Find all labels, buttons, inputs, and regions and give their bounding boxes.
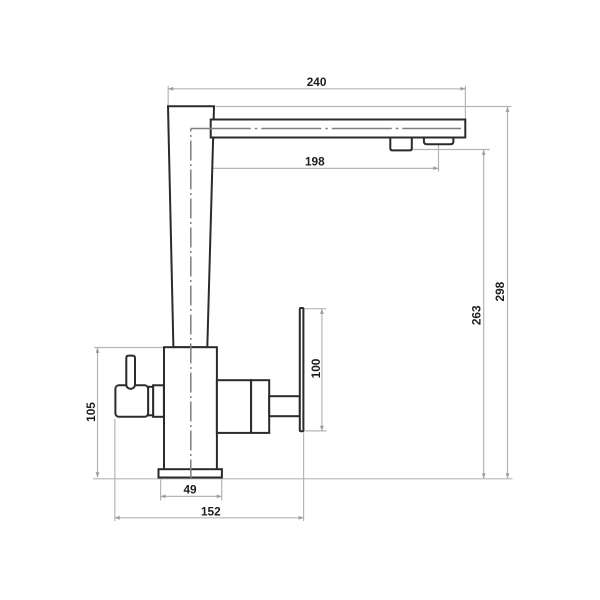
- svg-text:100: 100: [309, 358, 323, 378]
- svg-text:198: 198: [305, 155, 325, 169]
- svg-text:298: 298: [493, 281, 507, 301]
- svg-text:263: 263: [470, 305, 484, 325]
- svg-text:49: 49: [183, 483, 197, 497]
- svg-text:240: 240: [307, 75, 327, 89]
- svg-text:105: 105: [84, 402, 98, 422]
- svg-text:152: 152: [201, 505, 221, 519]
